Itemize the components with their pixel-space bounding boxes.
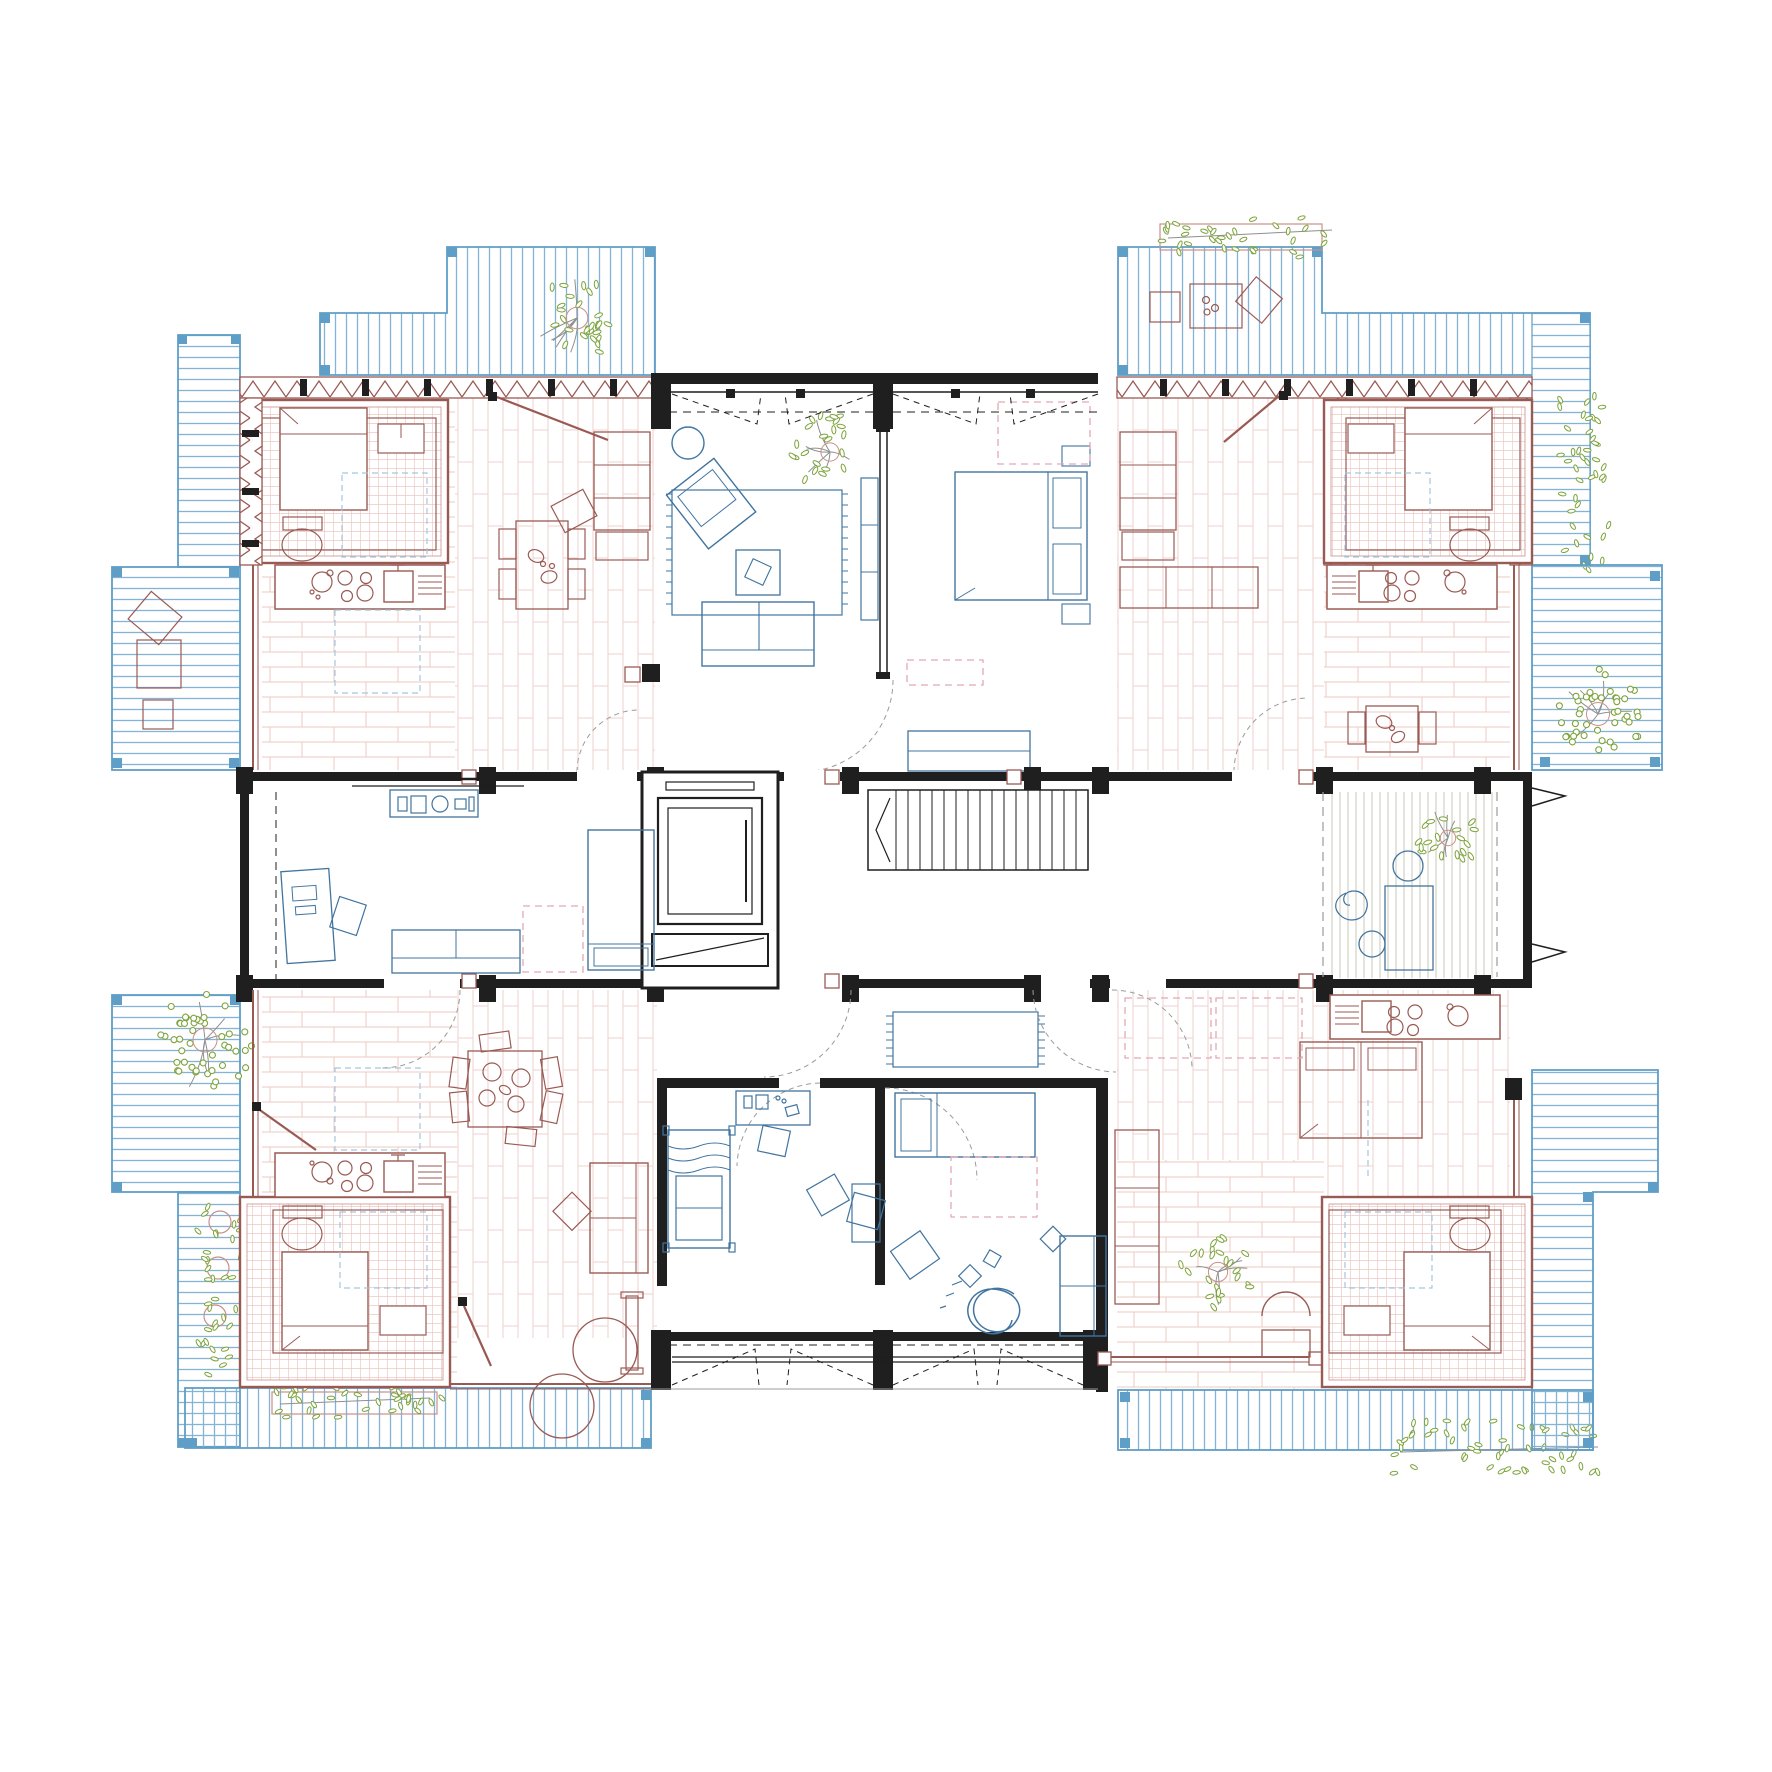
kitchen-top-right <box>1327 565 1497 609</box>
core-elevator <box>642 772 778 988</box>
walls-kids-rooms <box>650 1078 1108 1392</box>
bed-nook-band <box>523 830 654 972</box>
kitchen-top-left <box>275 565 445 609</box>
scene-root <box>112 215 1662 1476</box>
wet-cell-bottom-left <box>240 1197 450 1387</box>
office-band-left <box>276 779 538 985</box>
balcony-left-bottom <box>112 992 255 1193</box>
wet-cell-top-right <box>1324 400 1532 563</box>
leafy-tree-icon <box>788 411 850 484</box>
core-stairs <box>868 790 1088 870</box>
balcony-left-middle <box>112 567 240 770</box>
floor-plan <box>0 0 1772 1772</box>
bedroom-top-center <box>955 402 1090 624</box>
wet-cell-bottom-right <box>1322 1197 1532 1387</box>
kids-room-left <box>663 1091 885 1252</box>
balcony-left-upper-strip <box>178 335 240 567</box>
kids-room-right <box>891 1093 1106 1336</box>
kitchen-bottom-left <box>275 1153 445 1197</box>
balcony-bottom-right <box>1118 1390 1601 1476</box>
balcony-right-middle <box>1532 565 1662 770</box>
living-room-top-center <box>666 411 1030 772</box>
wet-cell-top-left <box>242 400 448 563</box>
balcony-top-left <box>320 247 655 375</box>
floor-plan-canvas <box>0 0 1772 1772</box>
kitchen-bottom-right <box>1330 995 1500 1039</box>
balcony-right-bottom <box>1532 1070 1658 1450</box>
